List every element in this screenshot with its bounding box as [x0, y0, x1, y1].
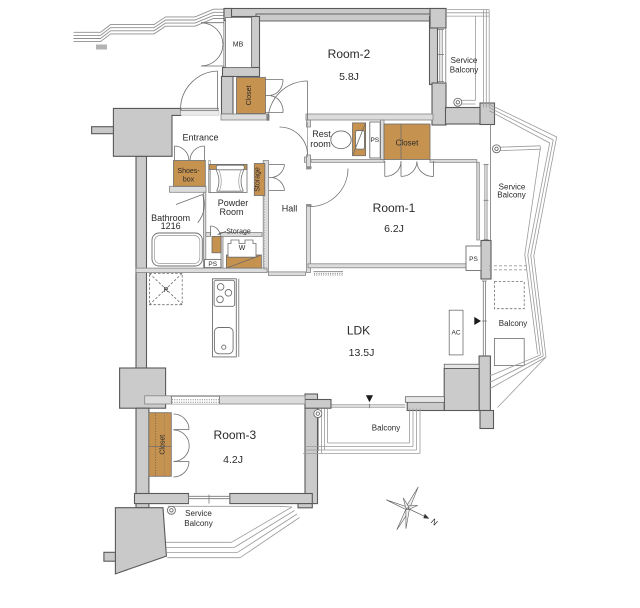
- svg-text:Balcony: Balcony: [499, 319, 527, 328]
- svg-text:Rest: Rest: [312, 129, 331, 139]
- svg-text:MB: MB: [233, 42, 244, 49]
- svg-text:R: R: [163, 287, 168, 294]
- svg-text:Closet: Closet: [396, 138, 419, 147]
- svg-text:1216: 1216: [161, 221, 181, 231]
- svg-text:Room: Room: [219, 207, 243, 217]
- svg-text:Storage: Storage: [255, 167, 262, 192]
- svg-text:Room-1: Room-1: [373, 201, 416, 215]
- svg-text:6.2J: 6.2J: [384, 223, 404, 235]
- svg-text:Storage: Storage: [226, 229, 251, 236]
- svg-text:W: W: [239, 245, 246, 252]
- svg-text:AC: AC: [451, 330, 460, 337]
- svg-text:Service: Service: [185, 509, 212, 518]
- svg-text:box: box: [183, 177, 195, 184]
- svg-text:Room-3: Room-3: [214, 428, 257, 442]
- svg-text:Room-2: Room-2: [328, 47, 371, 61]
- svg-text:Shoes-: Shoes-: [177, 168, 200, 175]
- svg-text:Balcony: Balcony: [450, 66, 478, 75]
- svg-text:PS: PS: [208, 261, 217, 268]
- svg-text:13.5J: 13.5J: [349, 347, 375, 359]
- svg-text:Balcony: Balcony: [497, 190, 525, 199]
- svg-text:Service: Service: [451, 56, 478, 65]
- svg-text:PS: PS: [469, 256, 478, 263]
- svg-text:PS: PS: [370, 137, 379, 144]
- svg-text:Balcony: Balcony: [372, 424, 400, 433]
- svg-text:4.2J: 4.2J: [223, 454, 243, 466]
- svg-text:LDK: LDK: [347, 324, 370, 338]
- svg-text:Hall: Hall: [282, 204, 298, 214]
- svg-text:Closet: Closet: [159, 435, 166, 455]
- svg-text:room: room: [310, 139, 331, 149]
- svg-text:Balcony: Balcony: [184, 519, 212, 528]
- svg-text:Entrance: Entrance: [182, 133, 218, 143]
- svg-text:5.8J: 5.8J: [339, 71, 359, 83]
- svg-text:Closet: Closet: [246, 86, 253, 106]
